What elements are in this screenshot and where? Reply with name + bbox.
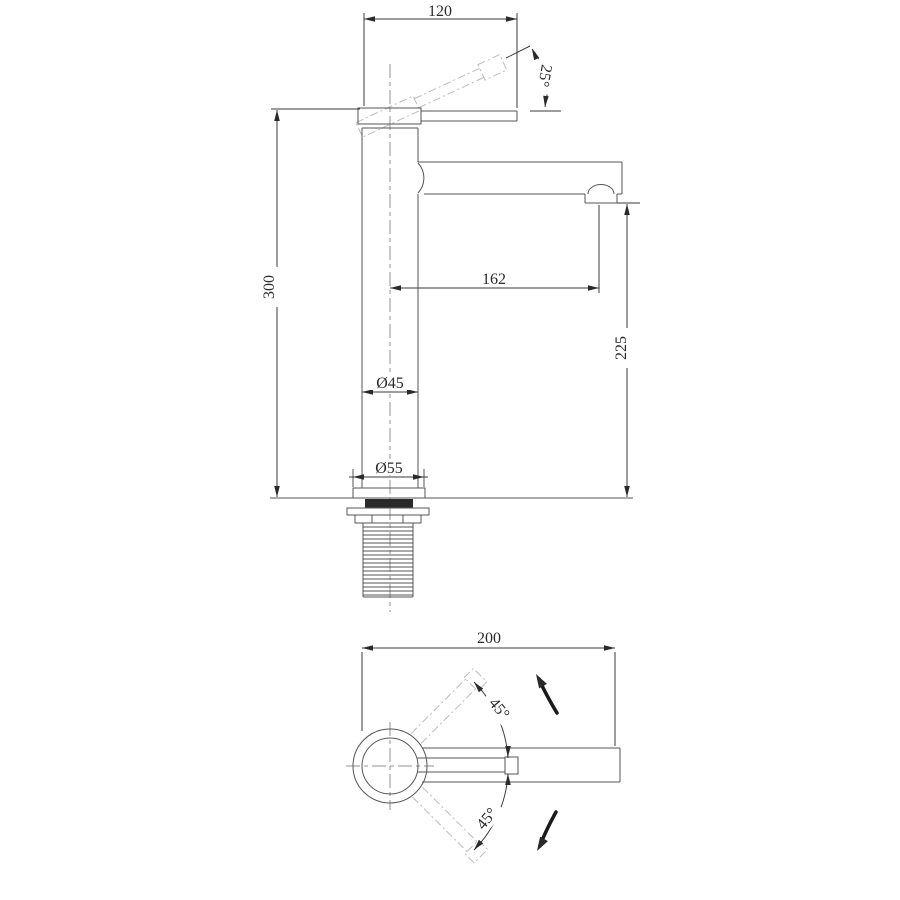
rotation-arrow-up <box>536 674 557 713</box>
handle-swung-up-ghost <box>410 668 487 745</box>
dimension-handle-length: 120 <box>364 3 517 108</box>
dimension-base-diameter: Ø55 <box>349 459 428 480</box>
dim-25deg-label: 25° <box>534 63 555 88</box>
dimension-spout-height: 225 <box>610 203 640 497</box>
dim-300-label: 300 <box>261 275 278 299</box>
handle-tilted-ghost <box>356 55 507 138</box>
dim-162-label: 162 <box>482 271 506 288</box>
spout-plan <box>422 748 620 782</box>
dim-200-label: 200 <box>477 630 501 647</box>
dim-d55-label: Ø55 <box>375 460 403 477</box>
dimension-handle-angle: 25° <box>506 46 561 111</box>
spout <box>418 162 622 194</box>
shank-threads <box>363 527 413 595</box>
spout-junction-arc <box>418 163 424 193</box>
dim-45deg-lower: 45° <box>466 797 505 838</box>
faucet-outline <box>270 108 633 597</box>
dim-225-label: 225 <box>613 336 630 360</box>
aerator <box>585 185 617 204</box>
technical-drawing: 120 25° 300 16 <box>0 0 900 900</box>
dim-45deg-upper: 45° <box>481 687 520 728</box>
dim-d45-label: Ø45 <box>376 375 404 392</box>
base-plate <box>353 488 425 498</box>
dim-120-label: 120 <box>428 3 452 20</box>
plan-center-cross <box>346 722 434 810</box>
mounting-nut <box>347 508 429 523</box>
threaded-shank <box>363 523 413 597</box>
dimension-spout-reach: 162 <box>390 205 599 293</box>
dimension-depth: 200 <box>362 630 615 746</box>
dimension-body-diameter: Ø45 <box>362 374 418 395</box>
dimension-total-height: 300 <box>258 109 360 497</box>
gasket <box>365 499 413 508</box>
plan-view: 45° 45° 200 <box>346 630 620 863</box>
handle-lever <box>421 111 517 121</box>
side-view: 120 25° 300 16 <box>258 3 640 612</box>
faucet-dimension-drawing: 120 25° 300 16 <box>0 0 900 900</box>
rotation-arrow-down <box>537 812 556 851</box>
